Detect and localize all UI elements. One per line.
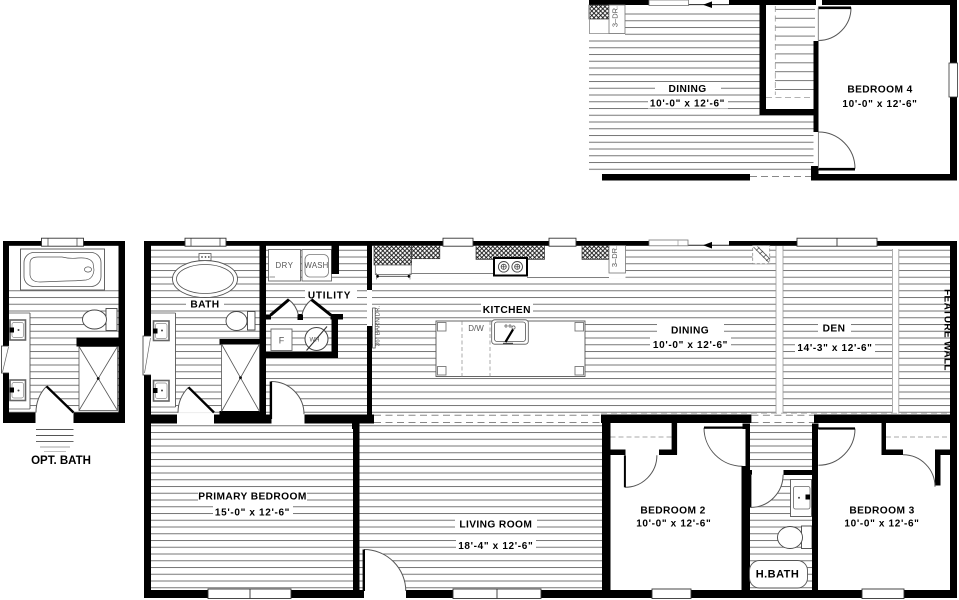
svg-text:F: F (279, 336, 285, 346)
svg-text:10'-0" x 12'-6": 10'-0" x 12'-6" (844, 518, 919, 529)
svg-text:BEDROOM 2: BEDROOM 2 (640, 506, 705, 517)
svg-text:LIVING ROOM: LIVING ROOM (459, 520, 532, 531)
svg-text:3–DR.: 3–DR. (611, 6, 620, 27)
svg-text:BEDROOM 4: BEDROOM 4 (847, 84, 912, 95)
svg-text:15'-0" x 12'-6": 15'-0" x 12'-6" (215, 508, 290, 519)
svg-text:PRIMARY BEDROOM: PRIMARY BEDROOM (198, 492, 306, 503)
svg-text:WASH: WASH (305, 261, 329, 270)
svg-text:H.BATH: H.BATH (756, 569, 799, 581)
svg-text:UTILITY: UTILITY (308, 290, 351, 301)
svg-text:14'-3" x 12'-6": 14'-3" x 12'-6" (797, 343, 872, 354)
svg-text:DINING: DINING (671, 326, 709, 337)
svg-text:BEDROOM 3: BEDROOM 3 (849, 506, 914, 517)
svg-text:10'-0" x 12'-6": 10'-0" x 12'-6" (653, 340, 728, 351)
svg-text:36" BARN DR.: 36" BARN DR. (375, 306, 382, 347)
svg-text:DINING: DINING (668, 84, 706, 95)
svg-text:D/W: D/W (468, 324, 484, 333)
svg-text:DRY: DRY (275, 261, 293, 270)
svg-text:DEN: DEN (823, 324, 846, 335)
svg-text:18'-4" x 12'-6": 18'-4" x 12'-6" (458, 541, 533, 552)
svg-text:10'-0" x 12'-6": 10'-0" x 12'-6" (650, 99, 725, 110)
svg-text:10'-0" x 12'-6": 10'-0" x 12'-6" (842, 99, 917, 110)
svg-text:BATH: BATH (190, 300, 219, 311)
svg-text:FEATURE WALL: FEATURE WALL (942, 289, 953, 371)
svg-text:10'-0" x 12'-6": 10'-0" x 12'-6" (636, 518, 711, 529)
svg-text:3–DR.: 3–DR. (610, 246, 619, 267)
svg-text:KITCHEN: KITCHEN (483, 305, 531, 316)
svg-text:OPT. BATH: OPT. BATH (31, 455, 91, 467)
svg-text:WH: WH (310, 338, 320, 344)
